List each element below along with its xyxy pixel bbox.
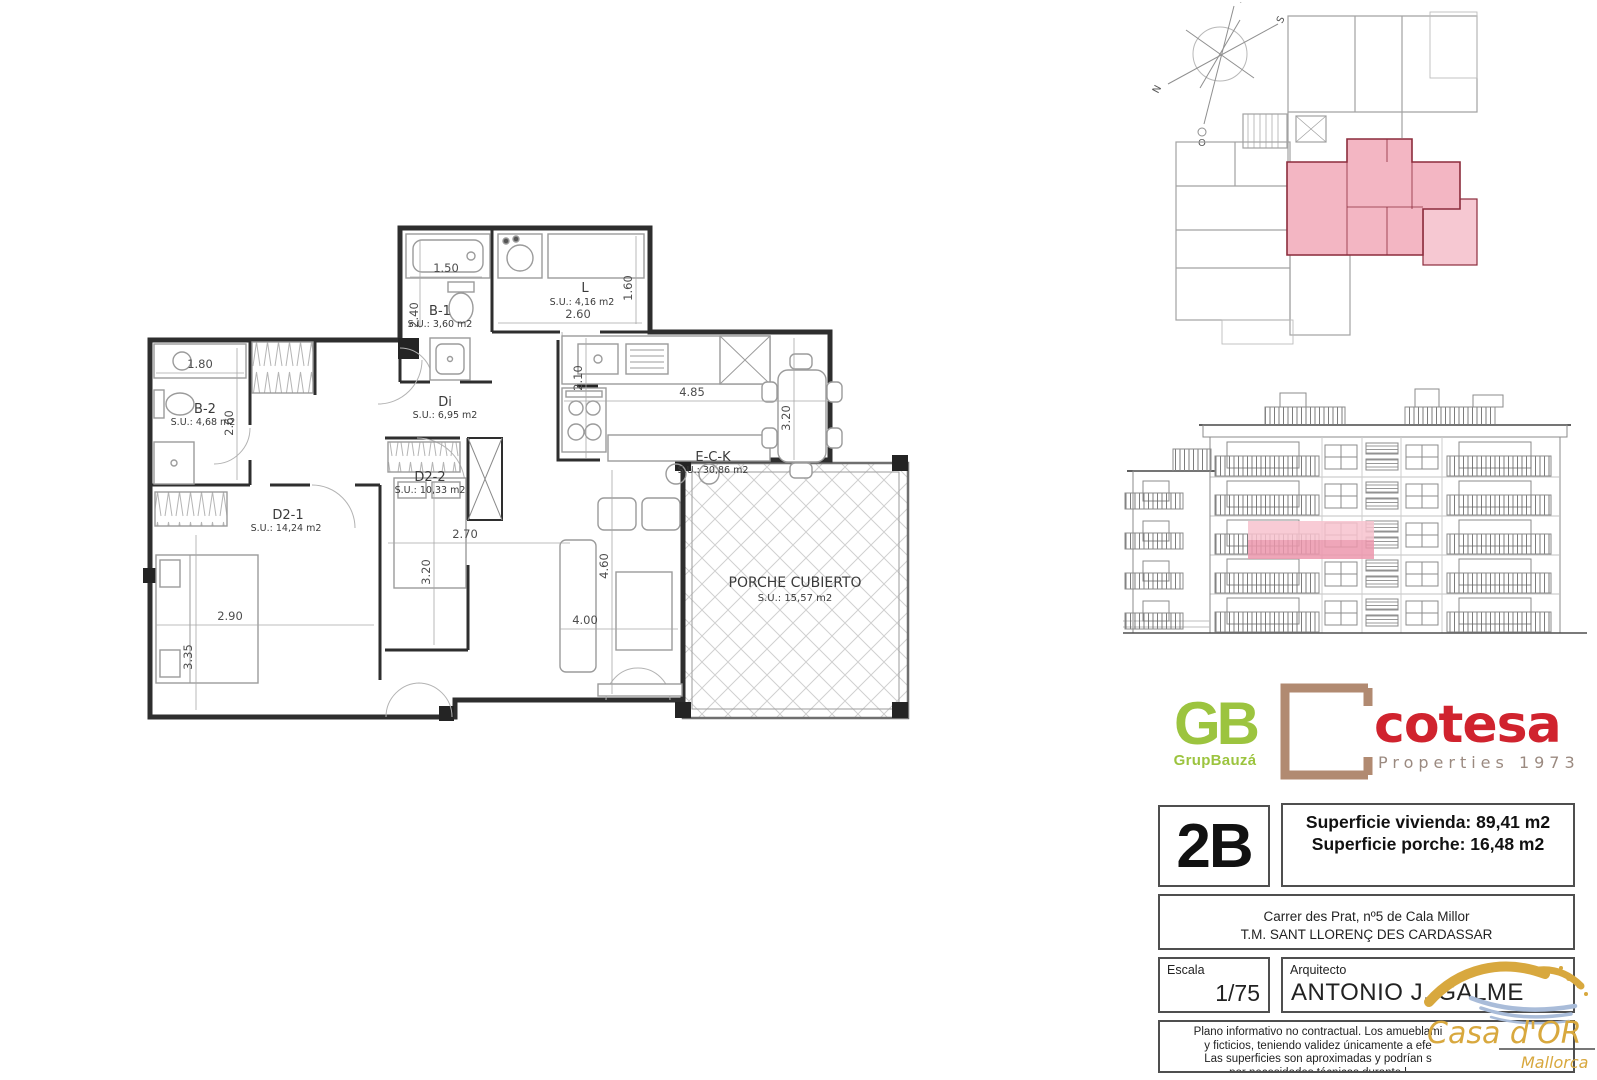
room-su-b1: S.U.: 3,60 m2 (408, 319, 473, 330)
dim-d22-width: 2.70 (452, 527, 478, 541)
room-label-l: L (581, 281, 589, 296)
room-su-b2: S.U.: 4,68 m2 (171, 417, 236, 428)
grupbauza-logo: GB GrupBauzá (1160, 698, 1270, 769)
address-line1: Carrer des Prat, nº5 de Cala Millor (1160, 908, 1573, 926)
surface-vivienda: Superficie vivienda: 89,41 m2 (1283, 812, 1573, 834)
casador-region: Mallorca (1521, 1053, 1588, 1072)
dim-eck-width: 4.85 (679, 385, 705, 399)
overview-plan: N S E O (1140, 2, 1585, 347)
room-label-b2: B-2 (194, 402, 216, 417)
room-su-eck: S.U.: 30,86 m2 (678, 465, 749, 476)
surface-porche: Superficie porche: 16,48 m2 (1283, 834, 1573, 856)
cotesa-logo-tagline: Properties 1973 (1378, 753, 1580, 772)
dim-d21-width: 2.90 (217, 609, 243, 623)
casador-name: Casa d'OR (1427, 1016, 1582, 1051)
compass-e: E (1235, 2, 1246, 6)
scale-box: Escala 1/75 (1158, 957, 1270, 1013)
room-label-d22: D2-2 (414, 470, 445, 485)
architect-label: Arquitecto (1290, 963, 1346, 977)
highlighted-unit (1287, 139, 1477, 265)
dim-l-height: 1.60 (621, 275, 635, 301)
unit-label: 2B (1176, 811, 1251, 882)
surface-box: Superficie vivienda: 89,41 m2 Superficie… (1281, 803, 1575, 887)
dim-b1-width: 1.50 (433, 261, 459, 275)
unit-box: 2B (1158, 805, 1270, 887)
scale-value: 1/75 (1215, 980, 1260, 1007)
grupbauza-logo-name: GrupBauzá (1160, 752, 1270, 769)
room-label-b1: B-1 (429, 304, 451, 319)
main-floor-plan: 1.50 2.40 2.60 1.60 1.80 2.60 2.90 3.35 … (130, 220, 920, 730)
casador-arch-icon (1429, 966, 1588, 1002)
room-label-eck: E-C-K (695, 450, 731, 465)
compass-s: S (1275, 15, 1288, 26)
dim-l-width: 2.60 (565, 307, 591, 321)
grupbauza-logo-initials: GB (1160, 698, 1270, 749)
room-label-d21: D2-1 (272, 508, 303, 523)
dim-b2-width: 1.80 (187, 357, 213, 371)
room-su-d21: S.U.: 14,24 m2 (251, 523, 322, 534)
elevation-highlight (1248, 521, 1374, 559)
dim-d22-height: 3.20 (419, 559, 433, 585)
dim-living-width: 4.00 (572, 613, 598, 627)
cotesa-logo-name: cotesa (1374, 695, 1561, 755)
casador-logo: Casa d'OR Mallorca (1423, 942, 1597, 1074)
compass-o: O (1198, 138, 1206, 149)
room-label-porche: PORCHE CUBIERTO (729, 575, 862, 591)
cotesa-logo: cotesa Properties 1973 (1262, 672, 1582, 784)
room-su-porche: S.U.: 15,57 m2 (758, 593, 832, 604)
cotesa-square-icon (1285, 688, 1368, 775)
dim-d21-height: 3.35 (181, 644, 195, 670)
room-su-d22: S.U.: 10,33 m2 (395, 485, 466, 496)
compass-rose: N S E O (1151, 2, 1288, 149)
room-label-di: Di (438, 395, 452, 410)
building-elevation (1115, 385, 1595, 650)
compass-n: N (1151, 84, 1164, 96)
dim-eck-depth: 2.10 (571, 365, 585, 391)
scale-label: Escala (1167, 963, 1205, 977)
plan-sheet: 1.50 2.40 2.60 1.60 1.80 2.60 2.90 3.35 … (0, 0, 1597, 1080)
room-su-di: S.U.: 6,95 m2 (413, 410, 478, 421)
dim-living-height: 4.60 (597, 553, 611, 579)
dim-dining-depth: 3.20 (779, 405, 793, 431)
room-su-l: S.U.: 4,16 m2 (550, 297, 615, 308)
